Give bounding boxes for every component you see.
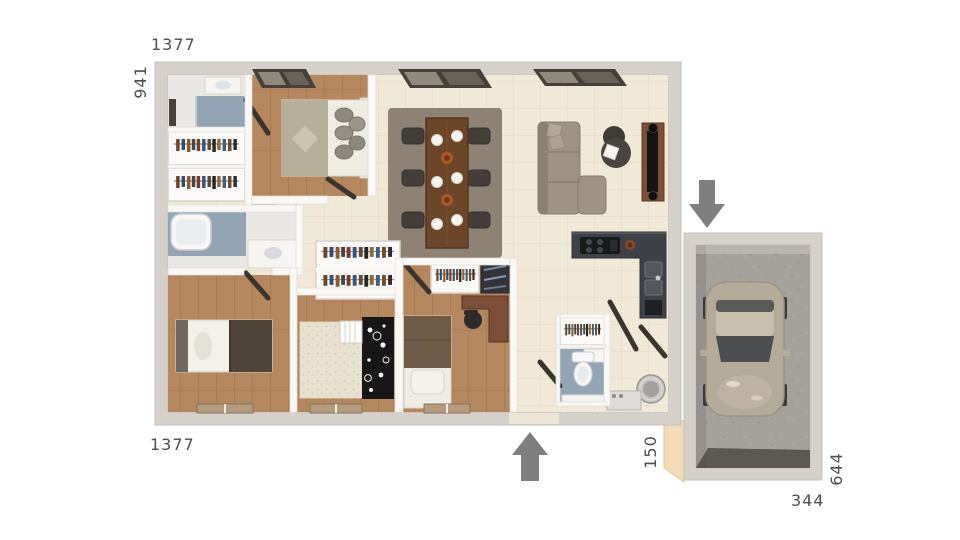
car-rear-window: [716, 300, 774, 312]
crib: [340, 321, 362, 343]
shelf-unit: [481, 261, 510, 293]
bedroom2-window: [197, 404, 253, 413]
floor-plan-rendering: 1377 941 1377 150 644 344: [0, 0, 960, 540]
family-bathroom: [168, 212, 298, 268]
dining-table: [426, 118, 468, 248]
bedroom-3: [403, 261, 510, 412]
dimension-left-height: 941: [131, 65, 150, 99]
stove: [580, 237, 620, 254]
master-bed: [282, 98, 370, 178]
nursery: [297, 295, 395, 412]
car-mirror-left: [700, 350, 709, 356]
coffee-machine: [645, 300, 662, 315]
dining-window: [398, 69, 492, 88]
bedroom-2: [168, 273, 290, 412]
master-bedroom-window: [252, 69, 316, 88]
bedroom2-bed: [176, 320, 272, 372]
dimension-garage-depth: 644: [827, 452, 846, 486]
garage-door-shadow: [696, 448, 810, 468]
dark-floral-rug: [362, 317, 394, 399]
nursery-window: [310, 404, 362, 413]
dimension-bottom-width: 1377: [150, 435, 195, 454]
tv: [647, 131, 658, 192]
bedroom3-window: [424, 404, 470, 413]
garage-floor-shadow-left: [696, 245, 706, 468]
dryer: [607, 391, 641, 410]
toilet: [572, 352, 594, 386]
living-room-window: [533, 69, 627, 86]
house: [155, 62, 681, 425]
garage: [664, 233, 822, 482]
floor-plan-page: 1377 941 1377 150 644 344: [0, 0, 960, 540]
wall-picture-frame: [169, 99, 176, 126]
car-mirror-right: [781, 350, 790, 356]
car: [700, 282, 790, 416]
master-bedroom: [252, 75, 370, 212]
bedroom3-bed: [404, 316, 451, 408]
dimension-top-width: 1377: [151, 35, 196, 54]
car-windshield: [716, 336, 774, 362]
windows-bottom: [197, 404, 470, 413]
speaker: [649, 192, 658, 201]
dimension-entry-gap: 150: [641, 435, 660, 469]
dimension-garage-width: 344: [791, 491, 825, 510]
shower-floor: [196, 96, 245, 127]
speaker: [649, 124, 658, 133]
car-hood: [718, 375, 772, 409]
entry-threshold: [509, 413, 559, 424]
tv-stand: [642, 123, 664, 201]
dining-area: [388, 108, 502, 258]
garage-floor-highlight-top: [696, 245, 810, 254]
